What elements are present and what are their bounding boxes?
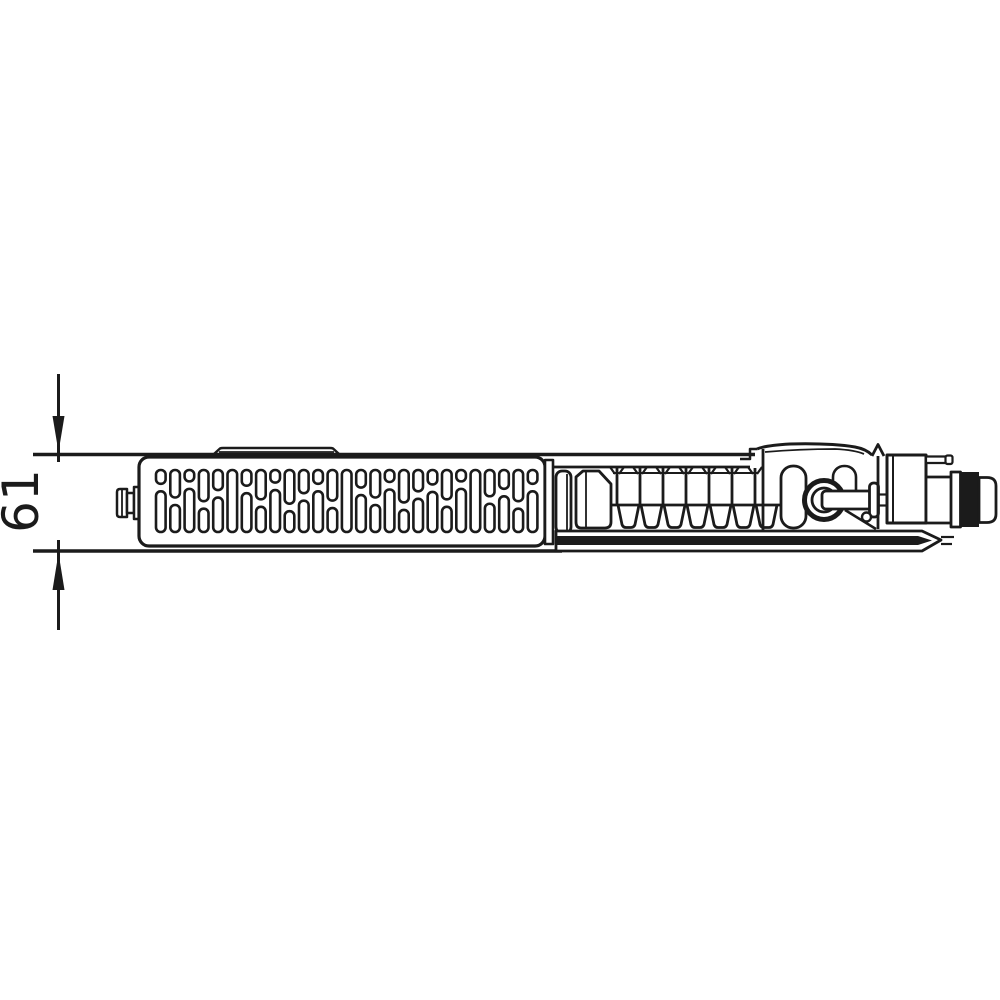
grille-slot bbox=[499, 470, 509, 489]
fin-cup bbox=[618, 505, 639, 528]
valve-spindle bbox=[822, 491, 872, 509]
section-joint bbox=[545, 460, 553, 544]
grille-slot bbox=[428, 470, 438, 484]
grille-slot bbox=[185, 489, 195, 532]
grille-slot bbox=[485, 504, 495, 532]
grille-slot bbox=[499, 496, 509, 532]
grille-slot bbox=[485, 470, 495, 496]
convector-end-cap bbox=[556, 471, 571, 533]
grille-slot bbox=[456, 470, 466, 481]
grille-slot bbox=[313, 491, 323, 532]
grille-slot bbox=[356, 470, 366, 488]
grille-slot bbox=[399, 510, 409, 532]
grille-slot bbox=[213, 498, 223, 532]
grille-slot bbox=[328, 470, 338, 501]
dimension-arrow-down bbox=[53, 416, 65, 452]
grille-slot bbox=[213, 470, 223, 490]
grille-slot bbox=[385, 470, 395, 482]
grille-slot bbox=[385, 489, 395, 532]
valve-nipple bbox=[926, 477, 952, 523]
grille-slot bbox=[256, 507, 266, 532]
housing-bolt bbox=[862, 513, 871, 522]
grille-slot bbox=[442, 507, 452, 532]
grille-slot bbox=[228, 470, 238, 532]
grille-slot bbox=[242, 493, 252, 532]
fin-cup bbox=[641, 505, 662, 528]
grille-slot bbox=[270, 490, 280, 532]
grille-slot bbox=[514, 470, 524, 501]
grille-slot bbox=[442, 470, 452, 499]
vent-pipe bbox=[926, 457, 947, 464]
fin-cup bbox=[733, 505, 754, 528]
valve-connection bbox=[887, 455, 996, 527]
mounting-tab bbox=[214, 448, 339, 454]
grille-panel bbox=[139, 448, 553, 546]
grille-slot bbox=[156, 470, 166, 484]
grille-slot bbox=[371, 470, 381, 497]
grille-slot bbox=[199, 470, 209, 501]
grille-slot bbox=[456, 489, 466, 532]
coupling-flange bbox=[951, 472, 961, 527]
valve-housing bbox=[740, 444, 890, 530]
fin-cup bbox=[687, 505, 708, 528]
dimension-arrow-up bbox=[53, 553, 65, 590]
grille-slot bbox=[299, 470, 309, 493]
radiator-technical-drawing: 61 bbox=[0, 0, 1000, 1000]
grille-slot bbox=[356, 495, 366, 532]
dimension-value: 61 bbox=[0, 469, 50, 533]
grille-slot bbox=[199, 509, 209, 532]
grille-slot bbox=[313, 470, 323, 484]
fin-cup bbox=[710, 505, 731, 528]
grille-slot bbox=[242, 470, 252, 486]
fin-cup bbox=[756, 505, 777, 528]
grille-slot bbox=[342, 470, 352, 532]
drawing-canvas: 61 bbox=[0, 0, 1000, 1000]
grille-slot bbox=[328, 508, 338, 532]
grille-slot bbox=[413, 470, 423, 491]
convector-fins bbox=[610, 467, 777, 528]
bottom-rail bbox=[556, 531, 954, 551]
grille-slot bbox=[170, 470, 180, 497]
grille-slot bbox=[185, 470, 195, 481]
grille-slot bbox=[256, 470, 266, 499]
fin-cup bbox=[664, 505, 685, 528]
grille-slot bbox=[285, 470, 295, 504]
grille-slot bbox=[270, 470, 280, 483]
grille-slot bbox=[285, 511, 295, 532]
grille-slot bbox=[399, 470, 409, 502]
grille-slot bbox=[528, 470, 538, 484]
housing-peak bbox=[872, 445, 884, 457]
grille-slot bbox=[514, 509, 524, 532]
vent-pipe-cap bbox=[946, 456, 953, 465]
bottom-rail-bar bbox=[557, 536, 932, 545]
convector-section bbox=[553, 467, 806, 533]
grille-slot bbox=[371, 505, 381, 532]
dimension-61: 61 bbox=[0, 374, 65, 630]
grille-slot bbox=[156, 491, 166, 532]
grille-slot bbox=[170, 505, 180, 532]
grille-slot bbox=[528, 491, 538, 532]
grille-slots bbox=[156, 470, 537, 532]
grille-slot bbox=[471, 470, 481, 532]
coupling-end-cap bbox=[979, 478, 996, 523]
coupling-ring bbox=[961, 472, 980, 527]
grille-slot bbox=[413, 499, 423, 532]
grille-slot bbox=[428, 492, 438, 532]
grille-slot bbox=[299, 501, 309, 532]
convector-channel bbox=[576, 471, 611, 528]
